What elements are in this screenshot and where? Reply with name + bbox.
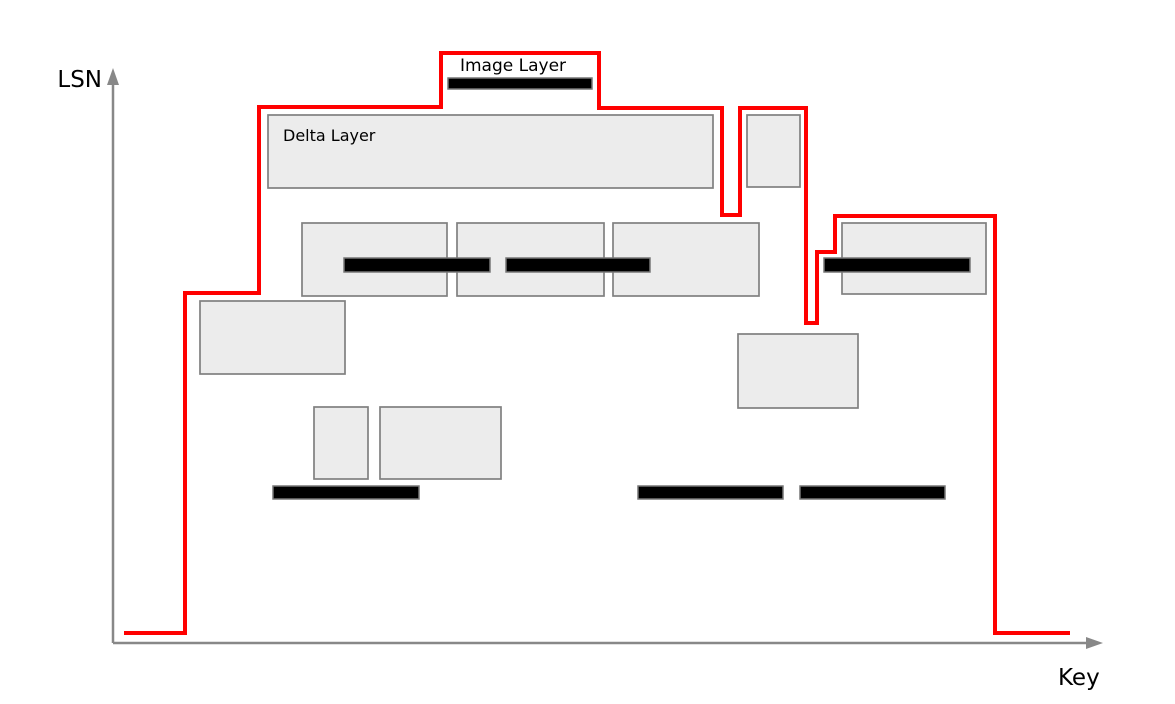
delta-box-lower (380, 407, 501, 479)
image-bar-bottom-3 (800, 486, 945, 499)
image-bar-bottom-2 (638, 486, 783, 499)
x-axis-arrowhead-icon (1086, 637, 1103, 649)
delta-layer-label: Delta Layer (283, 126, 376, 145)
delta-box-left (200, 301, 345, 374)
image-layer-label: Image Layer (460, 56, 566, 76)
image-bar-top-right (824, 258, 970, 272)
delta-box-lower-small (314, 407, 368, 479)
image-bar-top (448, 78, 592, 89)
delta-box-right-mid (738, 334, 858, 408)
image-bar-mid-1 (344, 258, 490, 272)
y-axis-label: LSN (57, 67, 102, 93)
y-axis-arrowhead-icon (107, 68, 119, 85)
image-bar-mid-2 (506, 258, 650, 272)
delta-box-right-of-main (747, 115, 800, 187)
layer-map-svg: LSNKeyImage LayerDelta Layer (0, 0, 1175, 704)
lsn-key-layer-map: LSNKeyImage LayerDelta Layer (0, 0, 1175, 704)
x-axis-label: Key (1058, 665, 1100, 691)
image-bar-bottom-1 (273, 486, 419, 499)
